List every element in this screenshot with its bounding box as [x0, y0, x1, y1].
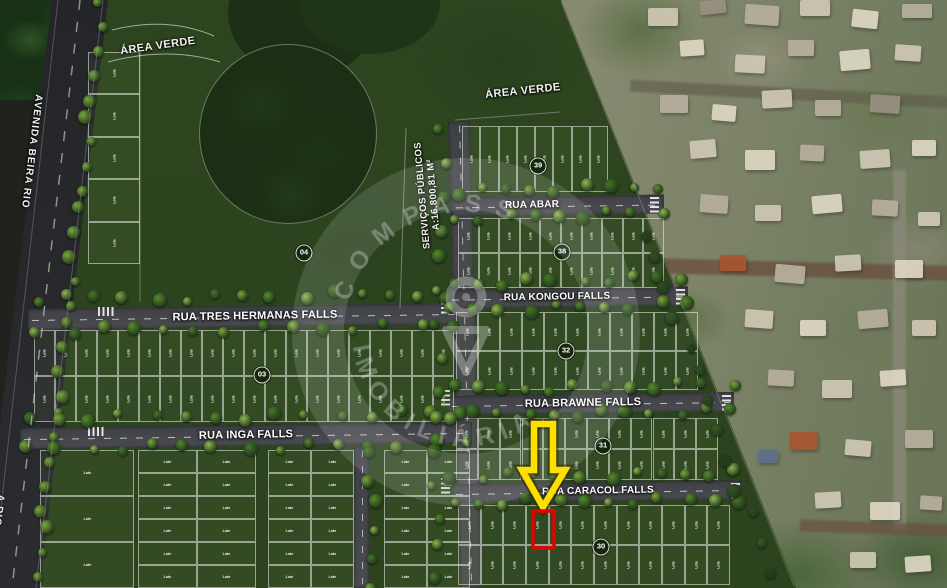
lot-label: Lote — [604, 561, 608, 569]
satellite-rooftop — [768, 369, 795, 386]
satellite-rooftop — [851, 9, 879, 30]
lot-label: Lote — [649, 561, 653, 569]
block-badge-38: 38 — [554, 244, 571, 261]
lot-cell: Lote — [268, 565, 311, 588]
tree — [444, 412, 457, 425]
tree — [433, 124, 443, 134]
tree — [237, 290, 248, 301]
tree — [429, 319, 439, 329]
lot-label: Lote — [83, 563, 91, 567]
circular-grove — [199, 44, 377, 224]
lot-label: Lote — [509, 430, 513, 438]
block-badge-32: 32 — [558, 343, 575, 360]
tree — [67, 226, 80, 239]
tree — [176, 439, 188, 451]
satellite-rooftop — [800, 0, 830, 16]
tree — [525, 305, 539, 319]
lot-label: Lote — [329, 552, 337, 556]
tree — [61, 317, 72, 328]
tree — [38, 548, 47, 557]
tree — [432, 286, 441, 295]
lot-label: Lote — [618, 461, 622, 469]
tree — [333, 439, 344, 450]
tree — [267, 406, 281, 420]
lot-label: Lote — [286, 460, 294, 464]
street-label-kongou: RUA KONGOU FALLS — [504, 291, 611, 304]
lot-cell: Lote — [707, 505, 730, 545]
lot-cell: Lote — [526, 545, 549, 585]
satellite-rooftop — [811, 194, 842, 215]
tree — [218, 327, 229, 338]
block-badge-31: 31 — [595, 438, 612, 455]
lot-label: Lote — [717, 561, 721, 569]
lot-label: Lote — [421, 395, 425, 403]
tree — [365, 583, 376, 588]
tree — [685, 493, 697, 505]
lot-label: Lote — [43, 395, 47, 403]
tree — [496, 280, 508, 292]
satellite-rooftop — [918, 212, 940, 226]
lot-label: Lote — [487, 367, 491, 375]
satellite-rooftop — [815, 491, 842, 508]
crosswalk — [650, 197, 659, 213]
tree — [657, 281, 670, 294]
lot-label: Lote — [553, 328, 557, 336]
lot-cell: Lote — [197, 519, 256, 542]
lot-cell: Lote — [478, 312, 500, 351]
tree — [599, 302, 610, 313]
lot-label: Lote — [85, 349, 89, 357]
lot-label: Lote — [295, 349, 299, 357]
tree — [624, 381, 637, 394]
lot-label: Lote — [83, 517, 91, 521]
crosswalk — [88, 427, 104, 436]
lot-label: Lote — [604, 521, 608, 529]
lot-label: Lote — [561, 155, 565, 163]
lot-label: Lote — [631, 232, 635, 240]
lot-label: Lote — [379, 395, 383, 403]
satellite-rooftop — [835, 254, 862, 271]
tree — [441, 158, 452, 169]
lot-label: Lote — [672, 521, 676, 529]
lot-cell: Lote — [662, 545, 685, 585]
tree — [765, 568, 776, 579]
tree — [567, 379, 578, 390]
tree — [665, 311, 679, 325]
tree — [71, 277, 80, 286]
lot-label: Lote — [316, 349, 320, 357]
lot-label: Lote — [552, 430, 556, 438]
lot-label: Lote — [528, 232, 532, 240]
lot-label: Lote — [597, 328, 601, 336]
lot-label: Lote — [683, 430, 687, 438]
tree — [396, 404, 408, 416]
lot-label: Lote — [169, 349, 173, 357]
tree — [576, 211, 590, 225]
tree — [316, 322, 330, 336]
lot-label: Lote — [581, 521, 585, 529]
tree — [369, 494, 383, 508]
block-badge-39: 39 — [530, 158, 547, 175]
lot-label: Lote — [402, 483, 410, 487]
lot-cell: Lote — [286, 330, 307, 376]
tree — [497, 500, 508, 511]
tree — [447, 320, 459, 332]
lot-cell: Lote — [662, 505, 685, 545]
lot-cell: Lote — [685, 545, 708, 585]
tree — [93, 0, 102, 7]
lot-cell: Lote — [370, 330, 391, 376]
tree — [644, 409, 653, 418]
lot-cell: Lote — [138, 473, 197, 496]
lot-label: Lote — [596, 461, 600, 469]
lot-label: Lote — [597, 155, 601, 163]
satellite-rooftop — [920, 495, 943, 511]
tree — [491, 304, 504, 317]
lot-label: Lote — [641, 328, 645, 336]
lot-label: Lote — [649, 521, 653, 529]
lot-cell: Lote — [500, 418, 522, 449]
lot-label: Lote — [685, 328, 689, 336]
lot-label: Lote — [223, 506, 231, 510]
tree — [604, 179, 618, 193]
lot-cell: Lote — [631, 418, 653, 449]
lot-label: Lote — [223, 529, 231, 533]
lot-cell: Lote — [522, 351, 544, 390]
tree — [358, 289, 367, 298]
lot-label: Lote — [508, 267, 512, 275]
lot-label: Lote — [663, 328, 667, 336]
lot-cell: Lote — [34, 376, 55, 422]
lot-cell: Lote — [40, 450, 134, 496]
lot-label: Lote — [465, 367, 469, 375]
lot-cell: Lote — [427, 519, 470, 542]
tree — [478, 183, 487, 192]
lot-cell: Lote — [685, 505, 708, 545]
lot-cell: Lote — [311, 496, 354, 519]
lot-label: Lote — [641, 367, 645, 375]
lot-cell: Lote — [311, 565, 354, 588]
lot-label: Lote — [211, 349, 215, 357]
lot-label: Lote — [400, 349, 404, 357]
lot-label: Lote — [445, 575, 453, 579]
lot-label: Lote — [487, 328, 491, 336]
lot-cell: Lote — [268, 496, 311, 519]
tree — [474, 499, 484, 509]
lot-cell: Lote — [391, 330, 412, 376]
tree — [153, 410, 163, 420]
lot-cell: Lote — [160, 330, 181, 376]
tree — [673, 377, 682, 386]
lot-label: Lote — [652, 232, 656, 240]
lot-label: Lote — [286, 529, 294, 533]
satellite-rooftop — [774, 264, 805, 285]
lot-label: Lote — [223, 575, 231, 579]
satellite-rooftop — [870, 502, 900, 520]
street-label-caracol: RUA CARACOL FALLS — [542, 485, 654, 498]
lot-label: Lote — [469, 155, 473, 163]
lot-cell: Lote — [97, 330, 118, 376]
tree — [630, 183, 639, 192]
tree — [703, 395, 714, 406]
tree — [444, 302, 455, 313]
lot-label: Lote — [445, 506, 453, 510]
lot-label: Lote — [626, 561, 630, 569]
lot-cell: Lote — [88, 222, 140, 264]
lot-label: Lote — [232, 349, 236, 357]
lot-label: Lote — [575, 328, 579, 336]
lot-label: Lote — [487, 461, 491, 469]
lot-label: Lote — [611, 232, 615, 240]
lot-label: Lote — [400, 395, 404, 403]
lot-label: Lote — [663, 367, 667, 375]
lot-label: Lote — [569, 267, 573, 275]
tree — [430, 411, 443, 424]
tree — [24, 412, 36, 424]
lot-label: Lote — [619, 328, 623, 336]
tree — [678, 410, 688, 420]
lot-cell: Lote — [549, 545, 572, 585]
satellite-rooftop — [905, 430, 933, 448]
satellite-rooftop — [755, 205, 781, 221]
lot-label: Lote — [466, 267, 470, 275]
lot-cell: Lote — [118, 330, 139, 376]
lot-label: Lote — [553, 367, 557, 375]
lot-cell: Lote — [609, 418, 631, 449]
tree — [56, 341, 68, 353]
lot-label: Lote — [232, 395, 236, 403]
tree — [641, 231, 652, 242]
lot-label: Lote — [509, 328, 513, 336]
lot-cell: Lote — [571, 545, 594, 585]
tree — [695, 365, 705, 375]
tree — [719, 454, 732, 467]
tree — [432, 539, 443, 550]
lot-cell: Lote — [160, 376, 181, 422]
lot-label: Lote — [694, 561, 698, 569]
lot-cell: Lote — [197, 565, 256, 588]
lot-label: Lote — [253, 349, 257, 357]
satellite-rooftop — [869, 94, 900, 114]
lot-label: Lote — [295, 395, 299, 403]
tree — [244, 442, 258, 456]
lot-label: Lote — [574, 461, 578, 469]
lot-label: Lote — [43, 349, 47, 357]
lot-cell: Lote — [384, 542, 427, 565]
satellite-rooftop — [762, 89, 793, 109]
tree — [33, 572, 43, 582]
lot-label: Lote — [164, 575, 172, 579]
satellite-rooftop — [699, 0, 726, 15]
lot-label: Lote — [83, 471, 91, 475]
lot-cell: Lote — [522, 418, 544, 449]
tree — [418, 319, 429, 330]
lot-label: Lote — [358, 349, 362, 357]
lot-label: Lote — [402, 575, 410, 579]
lot-label: Lote — [590, 232, 594, 240]
satellite-rooftop — [679, 39, 704, 57]
tree — [581, 178, 594, 191]
tree — [442, 471, 456, 485]
tree — [429, 572, 441, 584]
lot-cell: Lote — [197, 496, 256, 519]
tree — [503, 467, 513, 477]
lot-label: Lote — [626, 521, 630, 529]
tree — [649, 251, 661, 263]
lot-label: Lote — [112, 69, 116, 77]
lot-label: Lote — [509, 367, 513, 375]
lot-cell: Lote — [588, 312, 610, 351]
lot-label: Lote — [211, 395, 215, 403]
lot-label: Lote — [85, 395, 89, 403]
tree — [62, 250, 76, 264]
lot-cell: Lote — [384, 496, 427, 519]
tree — [385, 290, 395, 300]
tree — [452, 188, 466, 202]
lot-label: Lote — [329, 483, 337, 487]
tree — [239, 414, 252, 427]
satellite-rooftop — [912, 140, 936, 156]
tree — [680, 296, 694, 310]
lot-cell: Lote — [632, 312, 654, 351]
lot-label: Lote — [465, 430, 469, 438]
lot-cell: Lote — [268, 519, 311, 542]
satellite-rooftop — [894, 44, 921, 62]
lot-label: Lote — [536, 561, 540, 569]
satellite-rooftop — [912, 320, 936, 336]
lot-label: Lote — [286, 506, 294, 510]
lot-label: Lote — [112, 112, 116, 120]
lot-label: Lote — [488, 155, 492, 163]
satellite-rooftop — [744, 4, 779, 26]
lot-label: Lote — [575, 367, 579, 375]
lot-label: Lote — [127, 349, 131, 357]
lot-label: Lote — [662, 430, 666, 438]
tree — [622, 303, 634, 315]
tree — [451, 498, 460, 507]
lot-cell: Lote — [268, 473, 311, 496]
tree — [449, 379, 461, 391]
tree — [363, 446, 375, 458]
satellite-rooftop — [859, 149, 890, 169]
lot-cell: Lote — [311, 542, 354, 565]
tree — [276, 446, 285, 455]
crosswalk — [98, 307, 114, 316]
satellite-rooftop — [758, 450, 778, 463]
satellite-rooftop — [850, 552, 876, 568]
lot-label: Lote — [490, 521, 494, 529]
lot-label: Lote — [402, 529, 410, 533]
satellite-rooftop — [800, 144, 825, 161]
tree — [61, 289, 72, 300]
lot-label: Lote — [337, 349, 341, 357]
lot-label: Lote — [148, 349, 152, 357]
lot-cell: Lote — [610, 312, 632, 351]
lot-label: Lote — [618, 430, 622, 438]
tree — [730, 380, 741, 391]
lot-cell: Lote — [384, 519, 427, 542]
lot-cell: Lote — [268, 542, 311, 565]
tree — [657, 468, 667, 478]
lot-label: Lote — [190, 395, 194, 403]
lot-label: Lote — [106, 395, 110, 403]
tree — [473, 216, 483, 226]
lot-cell: Lote — [307, 330, 328, 376]
lot-label: Lote — [685, 367, 689, 375]
tree — [659, 208, 670, 219]
lot-cell: Lote — [197, 542, 256, 565]
lot-cell: Lote — [384, 565, 427, 588]
tree — [98, 320, 111, 333]
lot-label: Lote — [490, 561, 494, 569]
lot-label: Lote — [329, 506, 337, 510]
tree — [34, 297, 44, 307]
satellite-rooftop — [699, 194, 728, 214]
lot-cell: Lote — [138, 496, 197, 519]
lot-label: Lote — [164, 483, 172, 487]
tree — [524, 185, 535, 196]
tree — [467, 303, 479, 315]
lot-label: Lote — [619, 367, 623, 375]
lot-cell: Lote — [311, 519, 354, 542]
tree — [77, 186, 88, 197]
lot-cell: Lote — [138, 565, 197, 588]
lot-label: Lote — [536, 521, 540, 529]
tree — [378, 318, 388, 328]
lot-cell: Lote — [478, 418, 500, 449]
tree — [90, 445, 99, 454]
lot-label: Lote — [164, 460, 172, 464]
satellite-rooftop — [879, 369, 906, 387]
tree — [547, 186, 559, 198]
tree — [412, 291, 423, 302]
lot-label: Lote — [286, 575, 294, 579]
tree — [367, 412, 378, 423]
lot-label: Lote — [531, 367, 535, 375]
tree — [757, 538, 767, 548]
tree — [51, 365, 64, 378]
tree — [299, 410, 308, 419]
tree — [711, 424, 723, 436]
tree — [47, 441, 61, 455]
lot-cell: Lote — [138, 519, 197, 542]
tree — [647, 382, 661, 396]
lot-cell: Lote — [499, 218, 520, 253]
lot-label: Lote — [274, 349, 278, 357]
tree — [370, 526, 379, 535]
satellite-rooftop — [815, 100, 841, 116]
lot-label: Lote — [169, 395, 173, 403]
street-label-abar: RUA ABAR — [505, 199, 559, 211]
lot-label: Lote — [549, 232, 553, 240]
tree — [727, 484, 741, 498]
lot-label: Lote — [402, 506, 410, 510]
lot-cell: Lote — [40, 542, 134, 588]
tree — [472, 380, 485, 393]
tree — [361, 475, 374, 488]
lot-label: Lote — [445, 460, 453, 464]
lot-cell: Lote — [503, 505, 526, 545]
tree — [462, 438, 471, 447]
lot-label: Lote — [421, 349, 425, 357]
lot-cell: Lote — [181, 330, 202, 376]
lot-label: Lote — [379, 349, 383, 357]
lot-label: Lote — [316, 395, 320, 403]
satellite-rooftop — [902, 4, 932, 18]
tree — [724, 403, 736, 415]
lot-label: Lote — [253, 395, 257, 403]
tree — [653, 184, 663, 194]
